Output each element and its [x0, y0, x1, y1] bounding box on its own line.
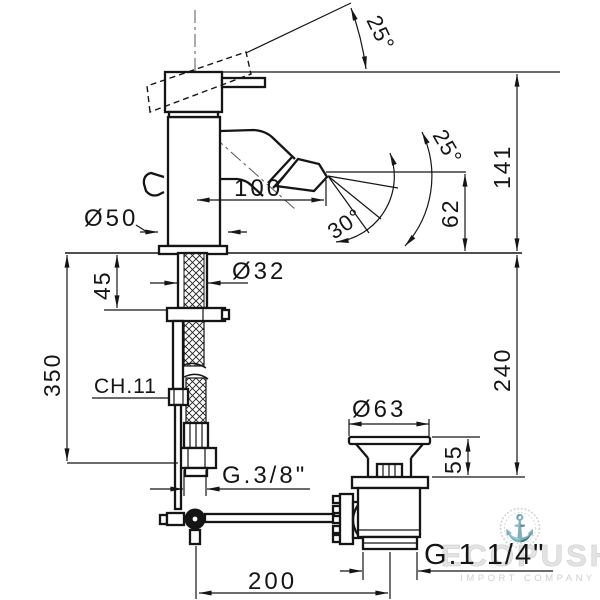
dim-dia-63: Ø63: [352, 396, 406, 423]
label-ch11: CH.11: [94, 375, 157, 398]
aerator-nozzle: [276, 159, 327, 191]
handle-angle-label: 25°: [362, 11, 400, 55]
waste-flange: [352, 477, 428, 488]
rod-hex-ch11: [169, 389, 188, 405]
braided-hose-upper: [184, 321, 204, 366]
dim-g38: G.3/8": [222, 462, 307, 489]
drawing-canvas: ⚓ ECOPUSH IMPORT COMPANY: [0, 0, 600, 600]
faucet-body: [168, 117, 220, 246]
dim-dia-50: Ø50: [84, 205, 138, 232]
dim-45: 45: [89, 270, 115, 300]
dim-100: 100: [234, 175, 283, 202]
technical-drawing: ⚓ ECOPUSH IMPORT COMPANY: [0, 0, 600, 600]
rod-joint-left: [167, 513, 184, 525]
dim-dia-32: Ø32: [232, 258, 286, 285]
mounting-nut: [167, 308, 225, 321]
spray-angle-25-label: 25°: [428, 125, 468, 169]
dim-240: 240: [489, 348, 515, 392]
linkage-rod: [205, 514, 334, 522]
popup-knob: [144, 173, 164, 196]
popup-rod: [175, 405, 181, 509]
spray-arc-25: [405, 132, 432, 246]
dim-350: 350: [39, 353, 65, 397]
drain-group: [349, 437, 430, 549]
supply-hex-nut: [177, 448, 216, 468]
waste-rim: [349, 437, 430, 444]
cartridge-head: [165, 72, 222, 112]
handle-angle-arc: [351, 8, 366, 69]
dim-200: 200: [248, 568, 297, 595]
lever-handle: [222, 78, 265, 87]
dim-g114: G.1 1/4": [424, 539, 545, 571]
dim-55: 55: [440, 444, 466, 474]
dim-141: 141: [489, 145, 515, 189]
dim-62: 62: [437, 198, 463, 228]
popup-rod-tube: [173, 321, 183, 389]
spray-angle-30-label: 30°: [323, 203, 367, 244]
head-groove: [169, 112, 218, 117]
dimensions-group: 25° 141 62 240 100 Ø50 Ø32 45 350 C: [39, 3, 560, 599]
watermark-subtitle: IMPORT COMPANY: [460, 573, 596, 584]
